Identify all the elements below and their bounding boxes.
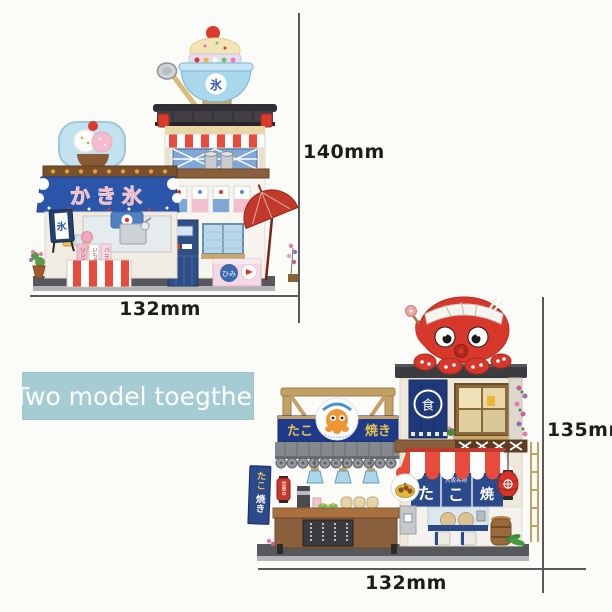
octopus-logo [316,398,358,440]
product-image: 氷 [0,0,612,612]
open-lantern-text: 営業中 [281,480,287,497]
vertical-banner: たこ 焼き [248,466,271,525]
octopus-figure [406,297,510,363]
noren-curtain: 食 [409,380,447,438]
model2-takoyaki-shop: たこ 焼き [245,292,555,577]
roof [153,104,277,126]
stall-counter [273,508,399,554]
climbing-flowers [509,378,528,440]
secret-counter: ひみ [213,259,261,286]
dim-line-model1-height [298,13,300,323]
side-trellis [531,442,538,542]
counter-window [428,507,488,531]
main-building: 食 [391,297,538,547]
open-lantern: 営業中 [277,476,290,503]
chalkboard-menu [303,520,353,546]
stand-sign-text: 氷 [55,220,68,234]
caption-badge: Two model toegther [22,372,254,420]
curtain-char2-text: こ [448,485,464,504]
shaved-ice-bowl: 氷 [179,26,253,106]
banner-text: かき氷 [70,184,148,208]
vertical-banner-bottom-text: 焼き [253,493,265,513]
wooden-beam [43,166,177,177]
striped-valance [165,134,265,148]
tile-ends [276,458,396,468]
kakigori-banner: かき氷 [34,177,182,212]
sign-right-text: 焼き [365,423,391,439]
dim-line-model1-width [30,295,300,297]
model1-kakigori-shop: 氷 [25,8,305,293]
striped-skirt [67,260,131,287]
ground-floor [400,506,526,547]
right-flowers [287,244,298,282]
arch-ice-cream-sign [59,121,125,170]
dim-line-model2-width [258,568,586,570]
model2-height-label: 135mm [547,419,612,441]
shutter-window [201,224,245,259]
food-plates [318,497,378,509]
dim-line-model2-height [542,297,544,593]
model2-width-label: 132mm [351,572,461,594]
tile-awning [275,442,401,468]
secret-sign-text: ひみ [222,270,236,278]
sign-left-text: たこ [287,424,313,439]
curtain-char3-text: 焼 [480,486,494,503]
noren-kanji-text: 食 [421,398,434,414]
dish-sign [391,474,419,502]
curtain-char1-text: た [418,484,434,503]
vertical-banner-top-text: たこ [254,471,266,490]
drink-machine [297,486,321,508]
wooden-window [447,384,511,441]
bowl-kanji-text: 氷 [209,77,223,92]
stall-shop: たこ 焼き [248,388,401,554]
left-plants [29,250,45,278]
model1-height-label: 140mm [303,141,385,163]
model1-width-label: 132mm [105,298,215,320]
